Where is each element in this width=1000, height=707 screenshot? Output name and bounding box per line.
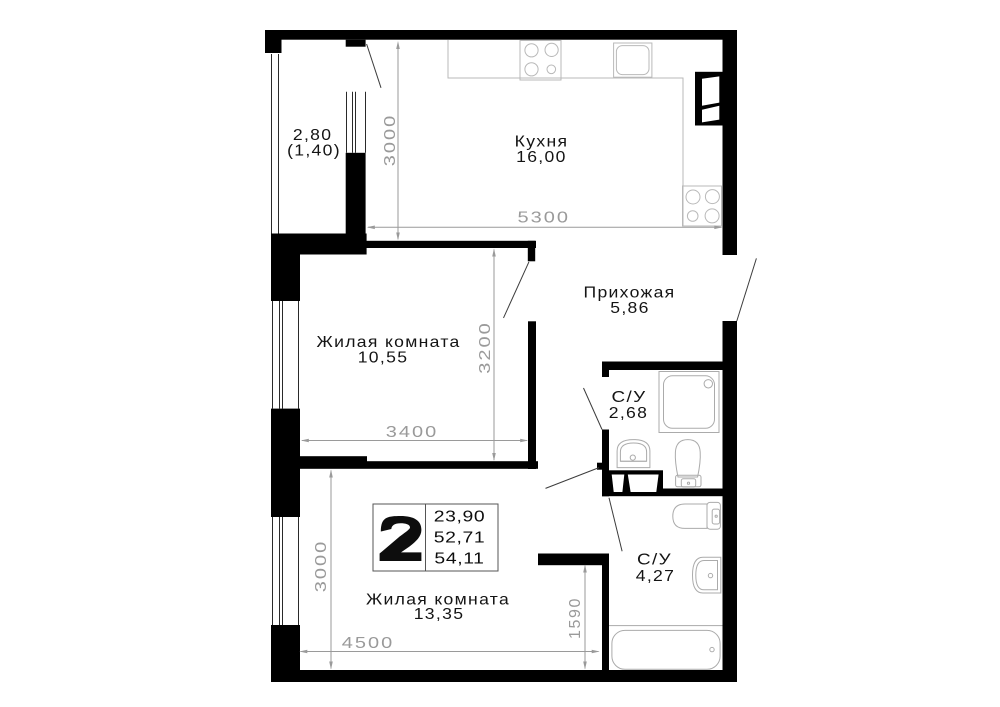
svg-text:2,68: 2,68	[609, 404, 649, 422]
svg-text:(1,40): (1,40)	[287, 141, 341, 159]
svg-text:52,71: 52,71	[434, 528, 486, 546]
svg-text:13,35: 13,35	[414, 605, 465, 623]
svg-text:54,11: 54,11	[434, 549, 484, 567]
svg-text:3400: 3400	[386, 423, 438, 441]
svg-text:3000: 3000	[312, 540, 330, 592]
svg-text:4500: 4500	[342, 634, 394, 652]
svg-text:10,55: 10,55	[358, 348, 409, 366]
svg-text:1590: 1590	[567, 597, 584, 639]
svg-text:3200: 3200	[476, 321, 494, 373]
svg-text:С/У: С/У	[637, 550, 672, 568]
svg-text:16,00: 16,00	[516, 148, 567, 166]
svg-text:3000: 3000	[381, 114, 399, 166]
svg-text:4,27: 4,27	[636, 567, 676, 585]
svg-text:5,86: 5,86	[610, 299, 650, 317]
svg-text:5300: 5300	[517, 208, 569, 226]
svg-text:23,90: 23,90	[434, 507, 486, 525]
